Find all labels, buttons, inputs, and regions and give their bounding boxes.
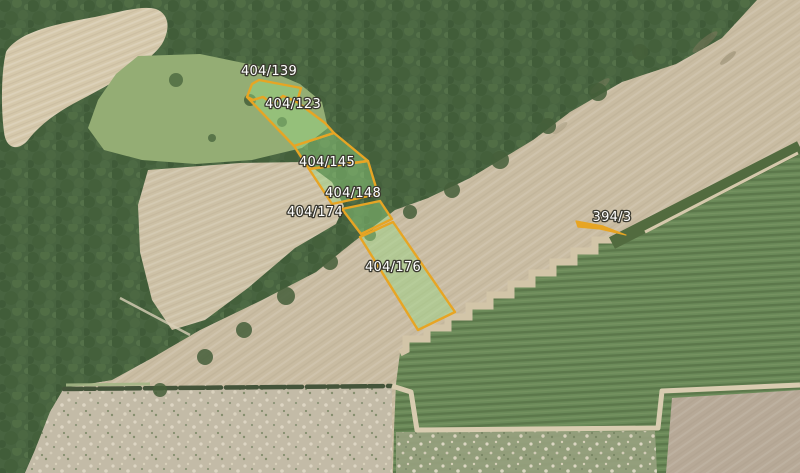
grass-strip xyxy=(66,384,150,385)
hedgerow-line xyxy=(64,386,391,389)
parcel-label: 404/123 xyxy=(265,97,321,112)
map-viewport[interactable]: 404/139 404/123 404/145 404/148 404/174 … xyxy=(0,0,800,473)
sparse-crop-strip xyxy=(396,431,657,473)
map-canvas[interactable]: 404/139 404/123 404/145 404/148 404/174 … xyxy=(0,0,800,473)
parcel-label: 404/176 xyxy=(365,260,421,275)
bottom-right-field xyxy=(666,390,800,473)
mottled-field xyxy=(25,385,392,473)
parcel-label: 404/139 xyxy=(241,64,297,79)
parcel-label: 404/174 xyxy=(287,205,343,220)
parcel-label: 394/3 xyxy=(593,210,632,225)
parcel-label: 404/148 xyxy=(325,186,381,201)
parcel-label: 404/145 xyxy=(299,155,355,170)
